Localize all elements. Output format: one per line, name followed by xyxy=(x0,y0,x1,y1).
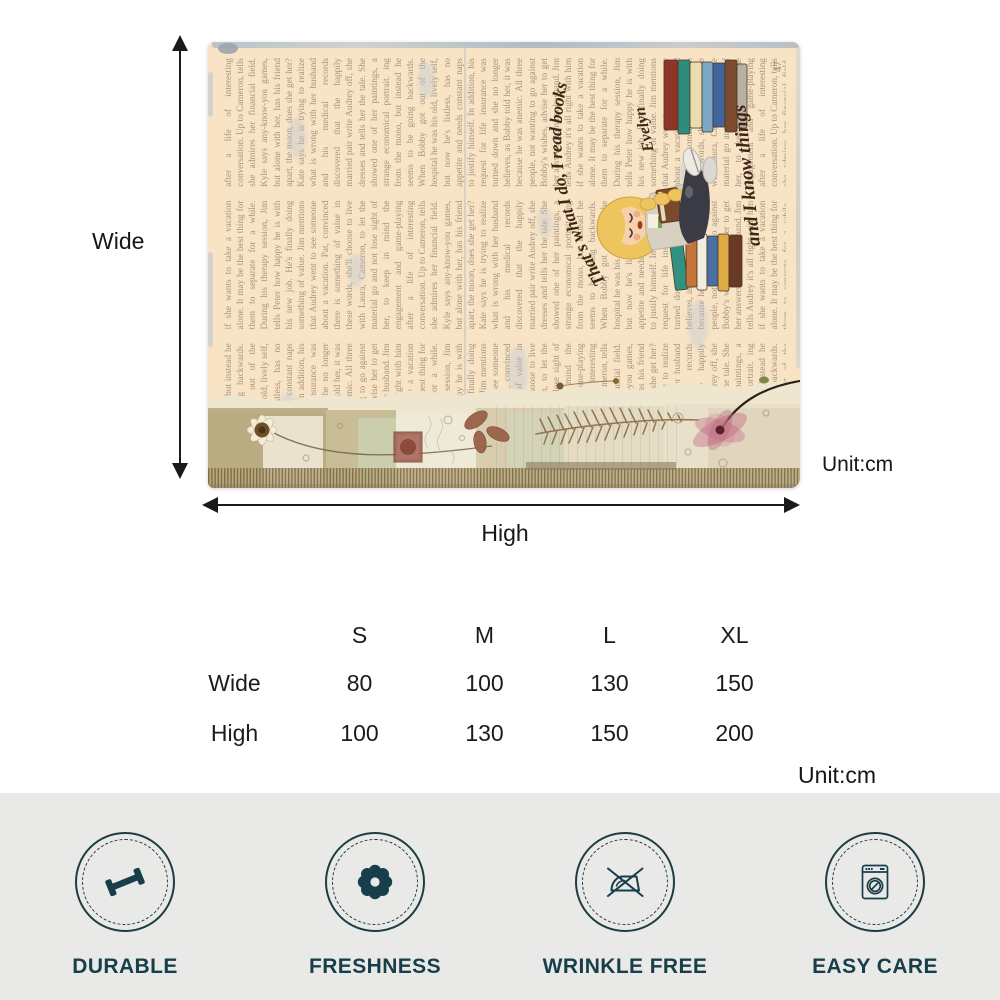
blanket-right-edge xyxy=(796,48,800,368)
wide-dimension-arrow xyxy=(167,30,193,484)
feature-wrinkle-free: WRINKLE FREE xyxy=(543,832,708,1000)
easy-care-badge xyxy=(825,832,925,932)
feature-label: EASY CARE xyxy=(812,955,938,979)
washing-machine-icon xyxy=(852,859,898,905)
blanket-image: ing from the mono, but instead he seems … xyxy=(208,42,800,488)
feature-label: DURABLE xyxy=(72,955,177,979)
feature-easy-care: EASY CARE xyxy=(812,832,938,1000)
high-label: High xyxy=(455,520,555,547)
flower-icon xyxy=(352,859,398,905)
edge-smudge xyxy=(208,252,213,347)
wide-value-m: 100 xyxy=(422,658,547,708)
edge-smudge xyxy=(208,72,213,117)
size-table: S M L XL Wide 80 100 130 150 High 100 13… xyxy=(172,612,797,758)
size-column-xl: XL xyxy=(672,612,797,658)
high-dimension-arrow xyxy=(196,492,806,518)
feature-durable: DURABLE xyxy=(72,832,177,1000)
no-iron-icon xyxy=(602,859,648,905)
high-value-xl: 200 xyxy=(672,708,797,758)
size-column-s: S xyxy=(297,612,422,658)
high-value-s: 100 xyxy=(297,708,422,758)
worn-patch xyxy=(348,254,364,288)
blanket-top-trim xyxy=(212,42,800,48)
freshness-badge xyxy=(325,832,425,932)
high-value-m: 130 xyxy=(422,708,547,758)
postage-stamp xyxy=(394,432,422,462)
feature-bar: DURABLE FRESHNESS xyxy=(0,793,1000,1000)
worn-patch xyxy=(688,300,708,348)
size-column-l: L xyxy=(547,612,672,658)
wide-value-s: 80 xyxy=(297,658,422,708)
wrinkle-free-badge xyxy=(575,832,675,932)
wide-value-xl: 150 xyxy=(672,658,797,708)
unit-label-table: Unit:cm xyxy=(700,762,876,789)
feature-freshness: FRESHNESS xyxy=(309,832,441,1000)
worn-patch xyxy=(288,118,306,158)
feature-label: WRINKLE FREE xyxy=(543,955,708,979)
row-label-wide: Wide xyxy=(172,658,297,708)
vintage-collage-strip xyxy=(208,368,800,488)
wide-value-l: 130 xyxy=(547,658,672,708)
page-number: 47 xyxy=(772,61,784,72)
product-size-chart: ing from the mono, but instead he seems … xyxy=(0,0,1000,1000)
trim-smudge xyxy=(218,43,238,54)
worn-patch xyxy=(418,62,434,98)
collage-graphic xyxy=(208,368,800,488)
reading-girl-illustration xyxy=(586,54,756,294)
size-column-m: M xyxy=(422,612,547,658)
row-label-high: High xyxy=(172,708,297,758)
high-value-l: 150 xyxy=(547,708,672,758)
dumbbell-icon xyxy=(102,859,148,905)
durable-badge xyxy=(75,832,175,932)
table-corner xyxy=(172,612,297,658)
wide-label: Wide xyxy=(92,228,144,255)
feature-label: FRESHNESS xyxy=(309,955,441,979)
unit-label-blanket: Unit:cm xyxy=(822,453,893,477)
